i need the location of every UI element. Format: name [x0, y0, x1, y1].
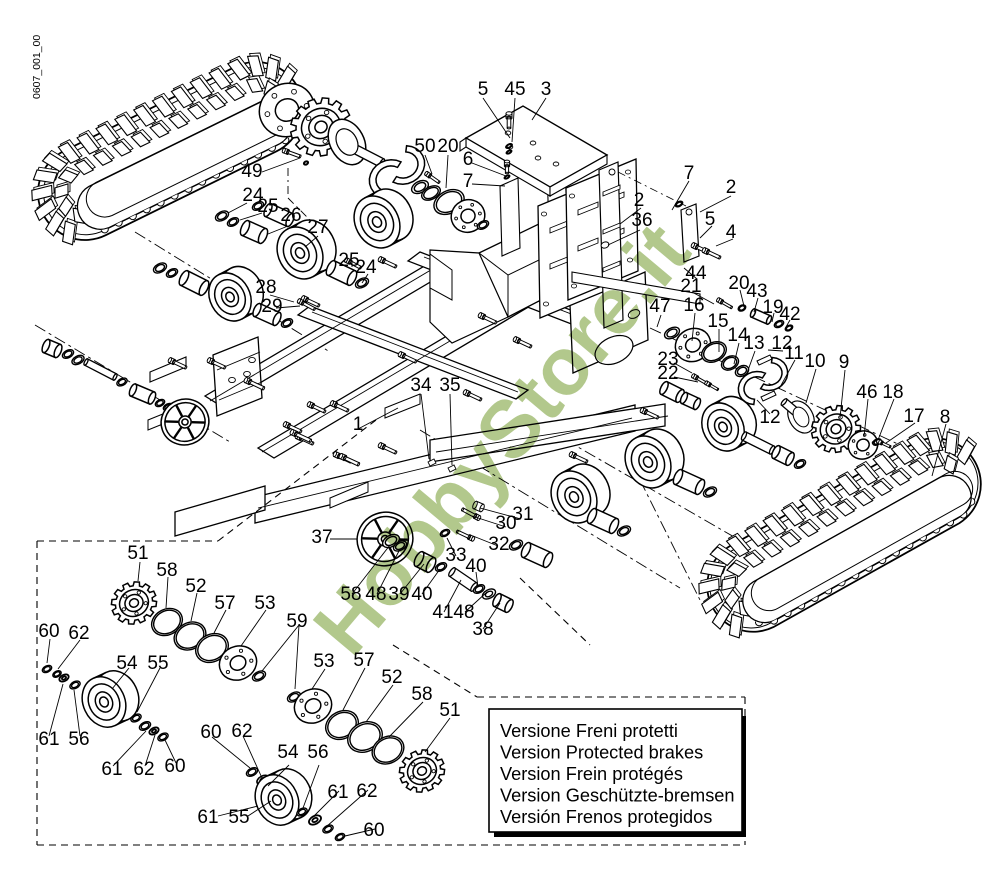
svg-text:61: 61: [101, 759, 122, 780]
svg-text:27: 27: [307, 217, 328, 238]
svg-text:61: 61: [197, 807, 218, 828]
svg-text:60: 60: [164, 756, 185, 777]
svg-text:41: 41: [432, 602, 453, 623]
svg-text:24: 24: [355, 257, 377, 278]
svg-text:52: 52: [185, 576, 206, 597]
svg-text:35: 35: [439, 375, 460, 396]
svg-text:38: 38: [472, 619, 493, 640]
svg-text:7: 7: [684, 163, 695, 184]
svg-text:32: 32: [488, 534, 509, 555]
svg-text:46: 46: [856, 382, 877, 403]
svg-text:25: 25: [257, 196, 278, 217]
svg-text:53: 53: [254, 593, 275, 614]
svg-text:Versione Freni protetti: Versione Freni protetti: [500, 721, 678, 741]
svg-text:45: 45: [504, 79, 525, 100]
svg-text:50: 50: [414, 136, 435, 157]
svg-text:22: 22: [657, 363, 678, 384]
svg-text:Versión Frenos protegidos: Versión Frenos protegidos: [500, 807, 712, 827]
svg-text:18: 18: [882, 382, 903, 403]
svg-text:5: 5: [705, 209, 716, 230]
svg-text:55: 55: [228, 807, 249, 828]
svg-text:62: 62: [231, 721, 252, 742]
svg-text:7: 7: [463, 171, 474, 192]
svg-text:31: 31: [512, 504, 533, 525]
svg-text:57: 57: [214, 593, 235, 614]
svg-text:51: 51: [127, 543, 148, 564]
svg-text:37: 37: [311, 527, 332, 548]
svg-text:Version Protected brakes: Version Protected brakes: [500, 743, 703, 763]
svg-text:12: 12: [759, 407, 780, 428]
svg-text:60: 60: [38, 621, 59, 642]
svg-text:13: 13: [743, 333, 764, 354]
svg-text:3: 3: [541, 79, 552, 100]
svg-text:52: 52: [381, 667, 402, 688]
svg-text:60: 60: [200, 722, 221, 743]
svg-text:17: 17: [903, 406, 924, 427]
svg-text:48: 48: [453, 602, 474, 623]
svg-text:9: 9: [839, 352, 850, 373]
svg-text:40: 40: [465, 556, 486, 577]
svg-text:62: 62: [356, 781, 377, 802]
svg-text:29: 29: [261, 296, 282, 317]
svg-text:2: 2: [726, 177, 737, 198]
svg-text:34: 34: [410, 375, 432, 396]
svg-text:6: 6: [463, 149, 474, 170]
svg-text:60: 60: [363, 820, 384, 841]
svg-text:1: 1: [353, 414, 364, 435]
svg-text:61: 61: [327, 782, 348, 803]
svg-text:16: 16: [683, 295, 704, 316]
svg-text:62: 62: [68, 623, 89, 644]
svg-text:11: 11: [784, 343, 804, 364]
svg-text:56: 56: [68, 729, 89, 750]
svg-text:42: 42: [779, 304, 800, 325]
svg-text:56: 56: [307, 742, 328, 763]
svg-text:10: 10: [804, 351, 825, 372]
svg-text:8: 8: [940, 407, 951, 428]
svg-text:0607_001_00: 0607_001_00: [31, 35, 43, 99]
svg-text:58: 58: [411, 684, 432, 705]
svg-text:28: 28: [255, 277, 276, 298]
svg-text:Version Geschützte-bremsen: Version Geschützte-bremsen: [500, 786, 735, 806]
svg-text:15: 15: [707, 311, 728, 332]
svg-text:62: 62: [133, 759, 154, 780]
svg-text:51: 51: [439, 700, 460, 721]
svg-text:53: 53: [313, 651, 334, 672]
svg-text:55: 55: [147, 653, 168, 674]
svg-text:4: 4: [726, 222, 737, 243]
svg-text:54: 54: [116, 653, 138, 674]
svg-text:Version Frein protégés: Version Frein protégés: [500, 764, 683, 784]
svg-text:26: 26: [280, 205, 301, 226]
svg-text:61: 61: [38, 729, 59, 750]
svg-text:58: 58: [156, 560, 177, 581]
svg-text:20: 20: [437, 136, 458, 157]
svg-text:5: 5: [478, 79, 489, 100]
svg-text:49: 49: [241, 161, 262, 182]
svg-text:54: 54: [277, 742, 299, 763]
